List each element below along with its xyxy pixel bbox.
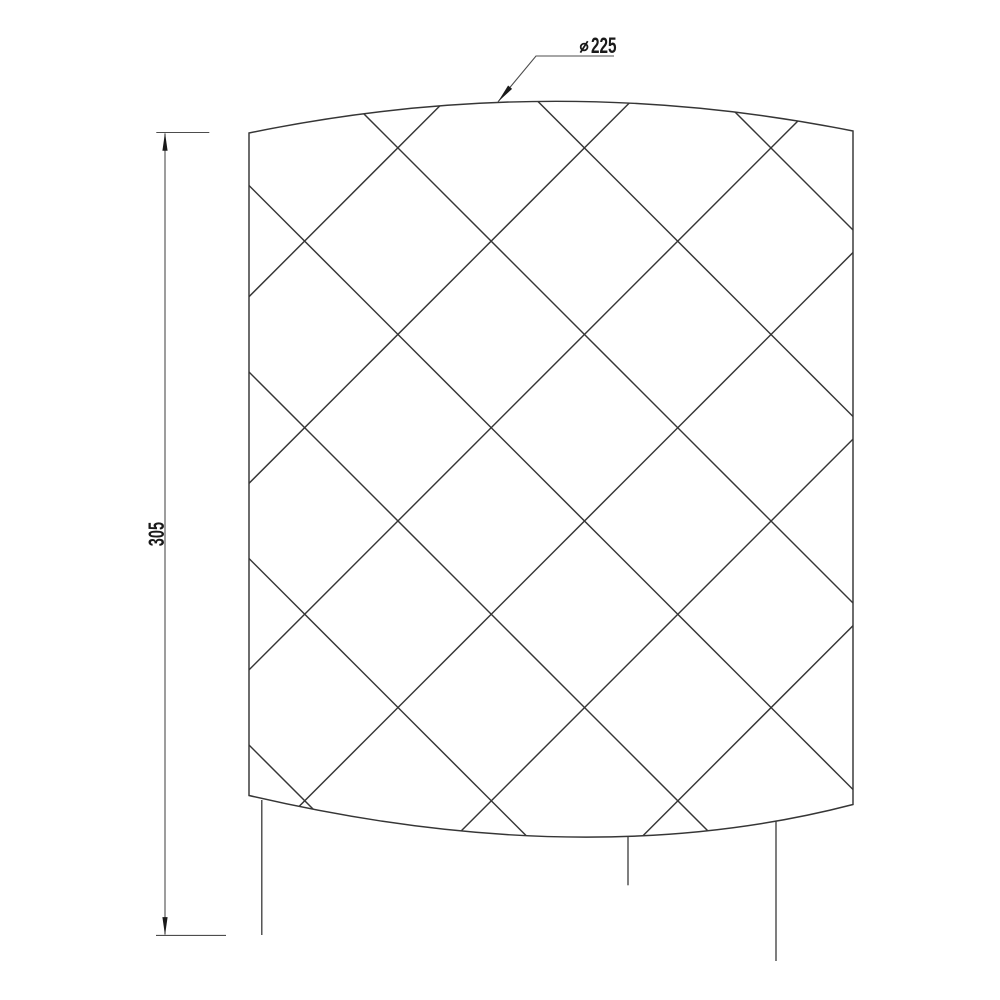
svg-text:225: 225 [591,34,617,59]
svg-text:305: 305 [144,522,169,546]
